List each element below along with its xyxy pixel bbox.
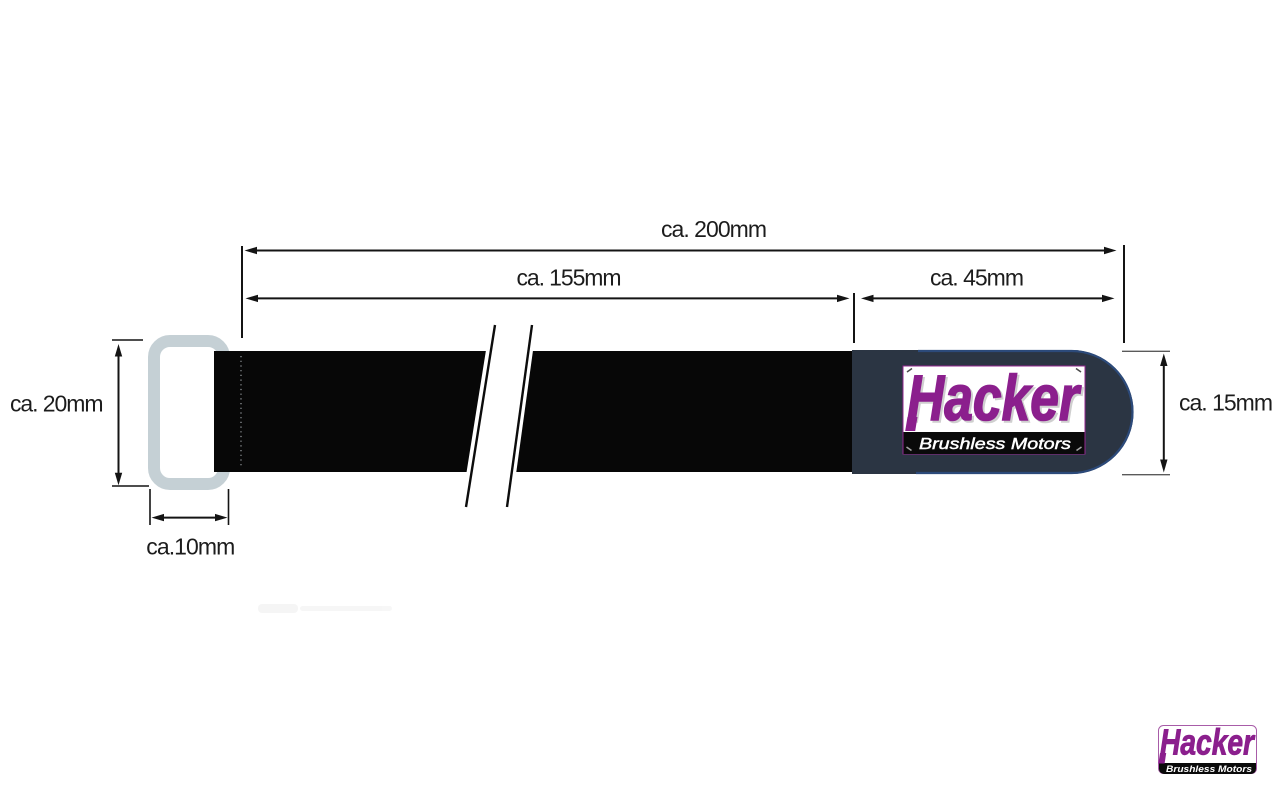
svg-text:Hacker: Hacker: [907, 362, 1081, 434]
svg-text:Brushless Motors: Brushless Motors: [1166, 764, 1252, 775]
svg-text:ca. 15mm: ca. 15mm: [1179, 390, 1273, 416]
svg-text:ca. 45mm: ca. 45mm: [930, 265, 1024, 291]
svg-text:ca. 155mm: ca. 155mm: [517, 265, 622, 291]
svg-text:ca. 20mm: ca. 20mm: [10, 391, 104, 417]
svg-text:Hacker: Hacker: [1160, 722, 1256, 763]
svg-text:ca.10mm: ca.10mm: [146, 534, 235, 560]
svg-text:Brushless Motors: Brushless Motors: [919, 436, 1071, 453]
svg-text:ca. 200mm: ca. 200mm: [661, 216, 767, 242]
